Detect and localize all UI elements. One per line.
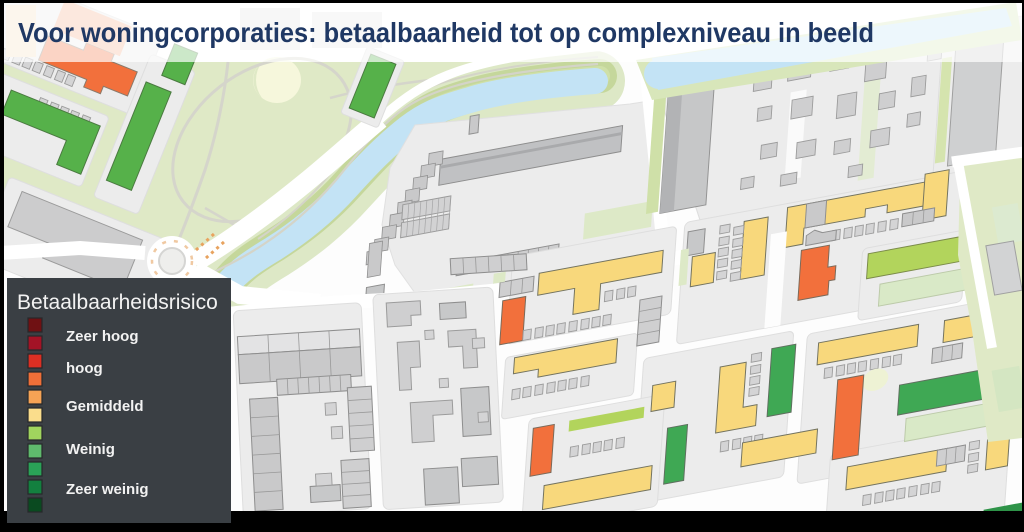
svg-text:Zeer weinig: Zeer weinig [66,481,149,498]
svg-text:hoog: hoog [66,360,103,377]
svg-text:Betaalbaarheidsrisico: Betaalbaarheidsrisico [17,291,218,314]
svg-text:Voor woningcorporaties: betaal: Voor woningcorporaties: betaalbaarheid t… [18,17,874,48]
svg-text:Weinig: Weinig [66,441,115,458]
svg-text:Gemiddeld: Gemiddeld [66,398,144,415]
svg-text:Zeer hoog: Zeer hoog [66,328,139,345]
